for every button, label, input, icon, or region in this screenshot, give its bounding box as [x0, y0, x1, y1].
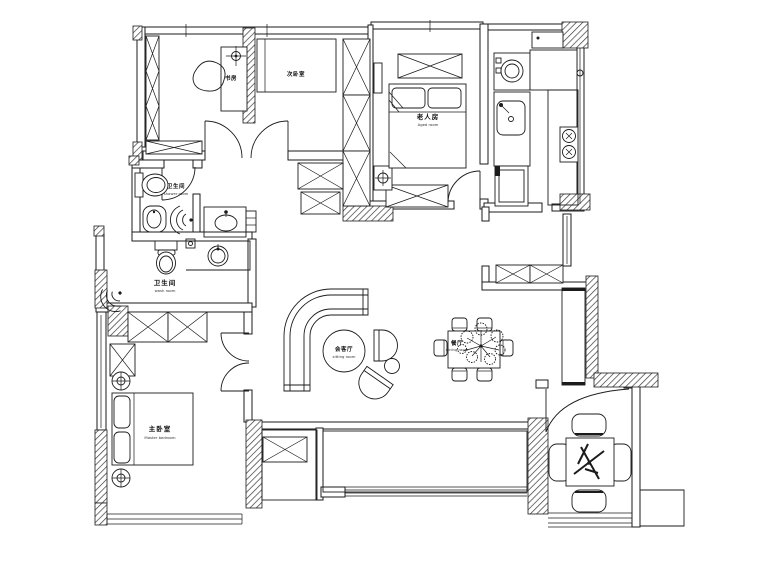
study-door — [205, 121, 242, 158]
master-bedroom-sublabel: Master bedroom — [144, 435, 175, 440]
master-bedroom-label: 主卧室 — [149, 424, 172, 433]
entry-cabinet — [496, 265, 563, 283]
desk-chair — [193, 61, 225, 91]
armchair — [374, 330, 398, 361]
side-table — [385, 359, 400, 374]
study-label: 书房 — [225, 74, 237, 82]
kitchen-sink — [497, 101, 525, 135]
floor-plan-canvas: 书房 次卧室 老人房 Aged room 卫生间 shower room 卫生间… — [0, 0, 761, 571]
dining-chair — [477, 318, 492, 331]
dining-room-sublabel: dining room — [446, 347, 469, 352]
bedroom2-label: 次卧室 — [287, 70, 305, 78]
toilet-icon — [155, 241, 177, 274]
game-chair — [572, 490, 606, 512]
elder-room-sublabel: Aged room — [418, 122, 439, 127]
dining-chair — [477, 368, 492, 381]
squat-pan-icon — [143, 206, 166, 232]
shower-room-label: 卫生间 — [167, 182, 185, 190]
elder-room-label: 老人房 — [416, 112, 440, 121]
floor-plan-drawing: 书房 次卧室 老人房 Aged room 卫生间 shower room 卫生间… — [0, 0, 761, 571]
dining-chair — [452, 318, 467, 331]
dining-chair — [500, 340, 513, 356]
ac-platform — [640, 490, 684, 526]
study-bookshelf — [146, 36, 159, 140]
wardrobe-strip — [343, 39, 370, 206]
shower-head-icon — [170, 206, 192, 234]
master-bedroom-double-door — [221, 333, 249, 391]
washing-machine — [494, 53, 530, 90]
basin-counter — [186, 241, 250, 270]
shower-room-fixtures — [135, 173, 193, 234]
study-low-cabinet — [146, 141, 202, 154]
bathroom-sublabel: wash room — [155, 288, 176, 293]
shower-room-sublabel: shower room — [164, 191, 189, 196]
bathroom-label: 卫生间 — [154, 278, 177, 287]
kitchen-furniture — [494, 32, 583, 206]
game-table — [566, 438, 614, 486]
towel-rack — [246, 211, 256, 232]
dining-room-label: 餐厅 — [450, 339, 463, 347]
bed — [257, 39, 336, 92]
hall-column-box — [374, 166, 392, 190]
nightstand — [374, 63, 382, 93]
balcony-cabinet — [263, 437, 307, 462]
study-furniture — [193, 46, 247, 111]
fridge — [495, 166, 528, 206]
master-bedroom-window — [107, 514, 242, 524]
hall-cabinet — [298, 163, 343, 214]
leisure-room-furniture — [549, 414, 684, 526]
dining-tall-cabinet — [562, 288, 585, 385]
stove — [560, 127, 578, 162]
bedside-table — [112, 469, 130, 487]
bedroom2-door — [251, 121, 288, 158]
dining-chair — [452, 368, 467, 381]
leisure-room-window — [548, 513, 632, 527]
living-room-label: 会客厅 — [335, 345, 353, 353]
game-chair — [572, 414, 606, 436]
bedside-table — [112, 372, 130, 390]
elder-room-door — [448, 171, 480, 203]
living-room-sublabel: sitting room — [333, 354, 356, 359]
